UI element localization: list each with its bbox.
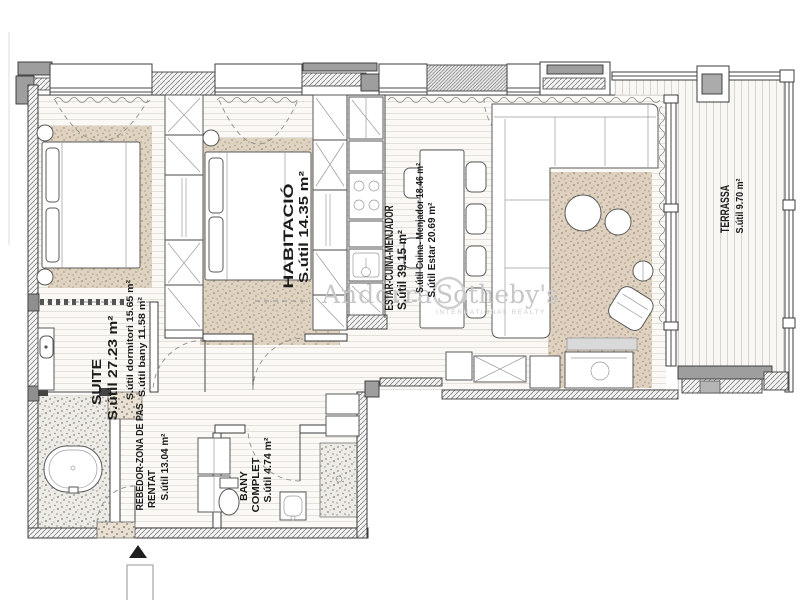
dining-chair — [466, 246, 486, 276]
stair-stub — [127, 565, 153, 600]
pillow — [209, 158, 223, 213]
kitchen-cabinet — [349, 221, 383, 247]
shower-floor — [320, 443, 358, 517]
label-suite-sub2: S.útil bany 11.58 m² — [137, 297, 148, 397]
coffee-table — [605, 209, 631, 235]
wall-pier — [152, 72, 215, 95]
label-suite: SUITE — [89, 359, 104, 405]
label-terrassa-area: S.útil 9.70 m² — [734, 178, 746, 233]
nightstand — [37, 269, 53, 285]
coffee-table — [565, 195, 601, 231]
hall-closet — [326, 416, 359, 436]
nightstand — [203, 130, 219, 146]
wall-lintel — [18, 62, 52, 75]
kitchen-cabinet — [349, 141, 383, 171]
toilet-tank — [220, 478, 238, 488]
north-arrow-icon — [129, 545, 147, 558]
pillow — [209, 217, 223, 272]
label-suite-area: S.útil 27.23 m² — [106, 316, 120, 421]
living-window — [507, 64, 543, 95]
bottom-wall — [135, 528, 368, 538]
watermark-brand-right: Sotheby's — [436, 280, 559, 309]
label-rebedor-area: S.útil 13.04 m² — [159, 433, 171, 500]
cooktop — [349, 173, 383, 219]
floor-plan-drawing: Andorra Sotheby's INTERNATIONAL REALTY H… — [0, 0, 800, 600]
watermark-tagline: INTERNATIONAL REALTY — [436, 309, 546, 316]
kitchen-wall-stub — [345, 315, 387, 329]
dining-chair — [466, 204, 486, 234]
hall-closet — [326, 394, 359, 414]
label-suite-sub1: S.útil dormitori 15.65 m² — [125, 280, 136, 400]
label-habitacio-area: S.útil 14.35 m² — [297, 171, 311, 283]
label-terrassa: TERRASSA — [720, 185, 732, 233]
toilet — [219, 489, 239, 515]
cabinet — [446, 352, 472, 380]
pillow — [46, 208, 59, 262]
label-bany: BANY — [238, 471, 250, 501]
tv-unit — [565, 352, 633, 388]
bathtub — [44, 446, 102, 492]
living-bottom-wall — [442, 390, 678, 399]
label-rebedor: REBEDOR-ZONA DE PAS — [134, 404, 146, 511]
pillow — [46, 148, 59, 202]
label-estar-area: S.útil 39.15 m² — [395, 230, 409, 310]
bottom-wall — [28, 528, 97, 538]
entry-marker — [127, 545, 153, 600]
floor-plan: Andorra Sotheby's INTERNATIONAL REALTY H… — [0, 0, 800, 600]
bedroom-window — [215, 64, 302, 95]
living-bottom-wall — [380, 378, 442, 386]
wall-lintel — [303, 63, 377, 71]
bedroom-wall — [305, 334, 347, 341]
label-habitacio: HABITACIÓ — [279, 183, 296, 288]
bany-wall — [215, 425, 245, 433]
label-estar-sub1: S.útil Cuina- Menjador 18.46 m² — [415, 162, 426, 293]
dining-chair — [466, 162, 486, 192]
living-window — [379, 64, 427, 95]
wall-pier — [361, 74, 379, 91]
label-estar: ESTAR-CUINA-MENJADOR — [382, 205, 396, 310]
label-estar-sub2: S.útil Estar 20.69 m² — [427, 202, 438, 298]
wall-lintel — [427, 65, 507, 91]
suite-bedroom — [37, 125, 140, 285]
suite-window — [50, 64, 152, 95]
suite-partition — [150, 302, 158, 392]
label-rebedor-name2: RENTAT — [146, 469, 158, 508]
terrace-bottom-wall — [678, 366, 772, 379]
bedroom-wall — [203, 334, 253, 341]
sideboard — [567, 338, 637, 350]
label-bany-name2: COMPLET — [250, 457, 262, 513]
label-bany-area: S.útil 4.74 m² — [262, 437, 274, 502]
nightstand — [37, 125, 53, 141]
cabinet — [530, 356, 560, 388]
entry-threshold — [97, 522, 135, 538]
wardrobe-left — [165, 95, 203, 330]
